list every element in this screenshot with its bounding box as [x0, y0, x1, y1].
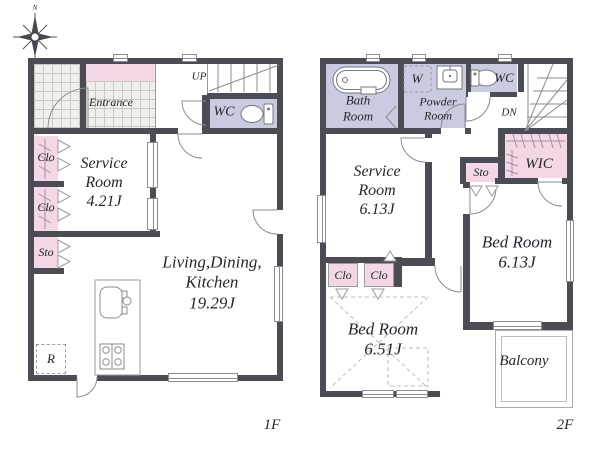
- washer-label: W: [412, 71, 423, 87]
- clo2-label: Clo: [37, 200, 54, 214]
- window: [566, 220, 574, 282]
- service-room-1f-label: Service Room 4.21J: [80, 154, 127, 212]
- service-room-2f-label: Service Room 6.13J: [353, 162, 400, 220]
- sto2f-label: Sto: [473, 165, 488, 179]
- window: [362, 390, 394, 398]
- window: [412, 54, 426, 62]
- sliding-door: [147, 198, 158, 230]
- entrance-label: Entrance: [89, 95, 133, 109]
- floorplan-canvas: N Entrance UP WC Clo Clo Sto Service Roo…: [0, 0, 600, 450]
- bed-room-a-label: Bed Room 6.51J: [348, 320, 418, 361]
- clo1-label: Clo: [37, 150, 54, 164]
- window: [168, 373, 238, 382]
- kitchen-sink-icon: [100, 287, 131, 318]
- powder-room-label: Powder Room: [419, 95, 456, 124]
- sink-icon: [437, 66, 462, 89]
- window: [274, 266, 283, 322]
- compass-rose-icon: [13, 13, 57, 61]
- stairs-down-label: DN: [501, 106, 516, 119]
- bed-room-b-label: Bed Room 6.13J: [482, 233, 552, 274]
- sto1f-label: Sto: [38, 245, 53, 259]
- toilet-icon: [241, 104, 273, 124]
- balcony-label: Balcony: [499, 352, 548, 370]
- floor2-label: 2F: [557, 416, 574, 434]
- window: [366, 54, 380, 62]
- kitchen-island: [95, 280, 140, 375]
- bath-room-label: Bath Room: [343, 92, 373, 123]
- stairs-up-label: UP: [192, 70, 207, 83]
- plan-linework: [0, 0, 600, 450]
- window: [396, 390, 428, 398]
- floor1-label: 1F: [264, 416, 281, 434]
- clo3-label: Clo: [334, 268, 351, 282]
- stairs-up: [209, 64, 279, 92]
- toilet-icon: [471, 70, 497, 86]
- wc1f-label: WC: [214, 105, 235, 122]
- stove-icon: [100, 344, 124, 369]
- ldk-label: Living,Dining, Kitchen 19.29J: [162, 252, 261, 313]
- window: [317, 195, 326, 243]
- bathtub-icon: [333, 67, 390, 94]
- clo4-label: Clo: [370, 268, 387, 282]
- wc2f-label: WC: [494, 70, 514, 86]
- window: [182, 54, 197, 62]
- compass-north-label: N: [33, 4, 38, 12]
- refrigerator-label: R: [47, 351, 55, 367]
- balcony-window: [493, 321, 542, 330]
- window: [113, 54, 128, 62]
- window: [498, 54, 512, 62]
- sliding-door: [147, 142, 158, 188]
- stairs-down: [525, 64, 567, 131]
- wic-label: WIC: [525, 155, 553, 173]
